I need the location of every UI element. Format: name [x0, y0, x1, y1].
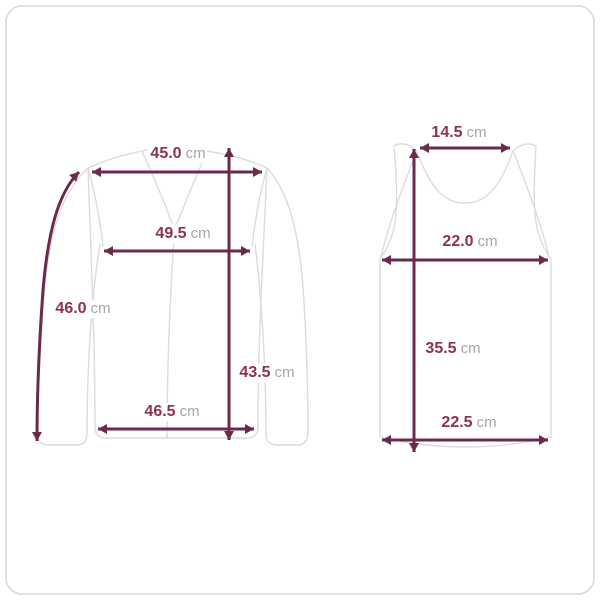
size-chart-canvas: 45.0cm 49.5cm 46.0cm 43.5cm 46.5cm 14.5c…: [0, 0, 600, 600]
label-chest-width: 49.5cm: [153, 225, 212, 243]
label-sleeve-length: 46.0cm: [53, 300, 112, 318]
label-hem-width: 46.5cm: [142, 403, 201, 421]
tank-armhole-left: [381, 153, 416, 257]
label-tank-total-length: 35.5cm: [423, 340, 482, 358]
tank-armhole-right: [514, 153, 549, 257]
long-sleeve-garment-outline: [37, 147, 308, 445]
label-tank-chest-width: 22.0cm: [440, 233, 499, 251]
label-tank-neck-width: 14.5cm: [429, 124, 488, 142]
label-shoulder-width: 45.0cm: [148, 145, 207, 163]
long-sleeve-measure-arrows: [37, 148, 262, 441]
label-total-length: 43.5cm: [237, 364, 296, 382]
garment-body: [88, 147, 267, 438]
label-tank-hem-width: 22.5cm: [439, 414, 498, 432]
sleeveless-measure-arrows: [382, 148, 548, 452]
tank-body: [380, 144, 551, 447]
sleeveless-garment-outline: [380, 144, 551, 447]
sleeve-right: [255, 168, 308, 445]
